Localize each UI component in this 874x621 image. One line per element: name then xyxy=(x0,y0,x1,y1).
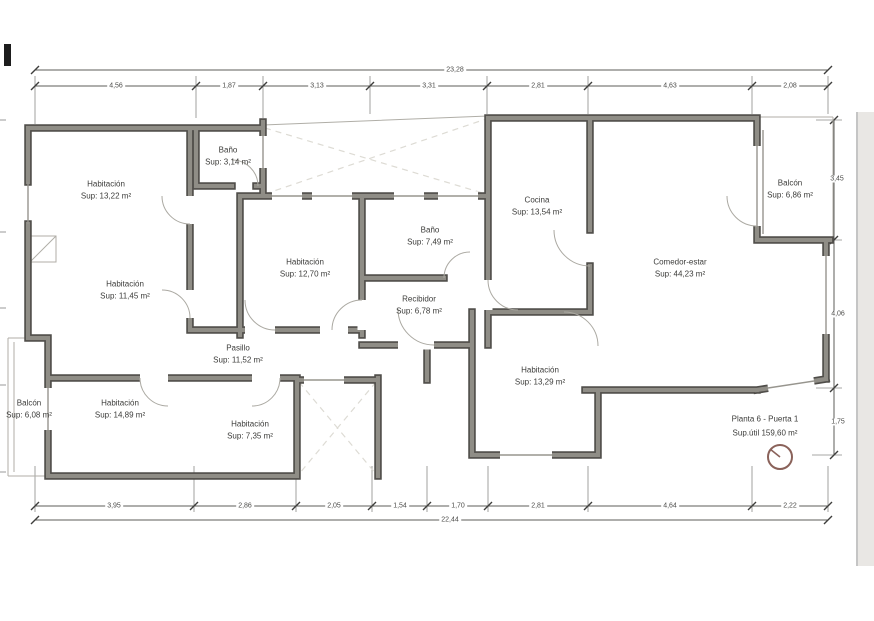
room-area: Sup: 44,23 m² xyxy=(653,269,706,281)
dim-top-seg-6: 4,63 xyxy=(661,83,679,90)
room-label-balcon-derecho: Balcón Sup: 6,86 m² xyxy=(767,178,813,203)
room-name: Habitación xyxy=(515,365,565,377)
room-name: Recibidor xyxy=(396,294,442,306)
dim-bottom-seg-5: 1,70 xyxy=(449,503,467,510)
dim-top-seg-7: 2,08 xyxy=(781,83,799,90)
room-name: Pasillo xyxy=(213,343,263,355)
room-area: Sup: 12,70 m² xyxy=(280,269,330,281)
room-area: Sup: 13,29 m² xyxy=(515,377,565,389)
dim-bottom-seg-4: 1,54 xyxy=(391,503,409,510)
room-area: Sup: 6,08 m² xyxy=(6,410,52,422)
floorplan-page: Habitación Sup: 13,22 m² Baño Sup: 3,14 … xyxy=(0,0,874,621)
dim-bottom-seg-7: 4,64 xyxy=(661,503,679,510)
edge-mark xyxy=(4,44,11,66)
clock-icon xyxy=(768,445,792,469)
dim-top-seg-2: 1,87 xyxy=(220,83,238,90)
room-label-habitacion-3: Habitación Sup: 12,70 m² xyxy=(280,257,330,282)
room-label-habitacion-5: Habitación Sup: 7,35 m² xyxy=(227,419,273,444)
room-label-pasillo: Pasillo Sup: 11,52 m² xyxy=(213,343,263,368)
room-area: Sup: 7,35 m² xyxy=(227,431,273,443)
room-area: Sup: 7,49 m² xyxy=(407,237,453,249)
room-name: Habitación xyxy=(81,179,131,191)
room-label-bano-1: Baño Sup: 3,14 m² xyxy=(205,145,251,170)
dim-top-seg-4: 3,31 xyxy=(420,83,438,90)
dim-bottom-seg-6: 2,81 xyxy=(529,503,547,510)
room-name: Habitación xyxy=(227,419,273,431)
dim-bottom-seg-3: 2,05 xyxy=(325,503,343,510)
room-label-balcon-izquierdo: Balcón Sup: 6,08 m² xyxy=(6,398,52,423)
title-block-line1: Planta 6 - Puerta 1 xyxy=(732,412,799,426)
room-area: Sup: 11,45 m² xyxy=(100,291,150,303)
title-block-line2: Sup.útil 159,60 m² xyxy=(732,426,799,440)
room-name: Habitación xyxy=(95,398,145,410)
dim-right-seg-1: 3,45 xyxy=(828,176,846,183)
room-area: Sup: 3,14 m² xyxy=(205,157,251,169)
room-area: Sup: 13,22 m² xyxy=(81,191,131,203)
room-label-habitacion-4: Habitación Sup: 14,89 m² xyxy=(95,398,145,423)
dim-right-seg-3: 1,75 xyxy=(829,419,847,426)
room-name: Balcón xyxy=(6,398,52,410)
room-area: Sup: 6,78 m² xyxy=(396,306,442,318)
room-label-habitacion-1: Habitación Sup: 13,22 m² xyxy=(81,179,131,204)
room-area: Sup: 14,89 m² xyxy=(95,410,145,422)
room-name: Balcón xyxy=(767,178,813,190)
room-label-cocina: Cocina Sup: 13,54 m² xyxy=(512,195,562,220)
room-name: Baño xyxy=(205,145,251,157)
room-name: Cocina xyxy=(512,195,562,207)
dim-right-seg-2: 4,06 xyxy=(829,311,847,318)
room-name: Habitación xyxy=(280,257,330,269)
room-label-habitacion-2: Habitación Sup: 11,45 m² xyxy=(100,279,150,304)
room-name: Habitación xyxy=(100,279,150,291)
dim-top-seg-5: 2,81 xyxy=(529,83,547,90)
room-area: Sup: 11,52 m² xyxy=(213,355,263,367)
room-name: Baño xyxy=(407,225,453,237)
room-label-bano-2: Baño Sup: 7,49 m² xyxy=(407,225,453,250)
room-label-habitacion-6: Habitación Sup: 13,29 m² xyxy=(515,365,565,390)
room-area: Sup: 6,86 m² xyxy=(767,190,813,202)
dim-top-seg-3: 3,13 xyxy=(308,83,326,90)
dim-bottom-seg-1: 3,95 xyxy=(105,503,123,510)
room-area: Sup: 13,54 m² xyxy=(512,207,562,219)
dim-top-total: 23,28 xyxy=(444,67,466,74)
dim-bottom-seg-8: 2,22 xyxy=(781,503,799,510)
dim-top-seg-1: 4,56 xyxy=(107,83,125,90)
dim-bottom-seg-2: 2,86 xyxy=(236,503,254,510)
room-label-recibidor: Recibidor Sup: 6,78 m² xyxy=(396,294,442,319)
title-block: Planta 6 - Puerta 1 Sup.útil 159,60 m² xyxy=(732,412,799,439)
room-label-comedor-estar: Comedor-estar Sup: 44,23 m² xyxy=(653,257,706,282)
dim-bottom-total: 22,44 xyxy=(439,517,461,524)
room-name: Comedor-estar xyxy=(653,257,706,269)
